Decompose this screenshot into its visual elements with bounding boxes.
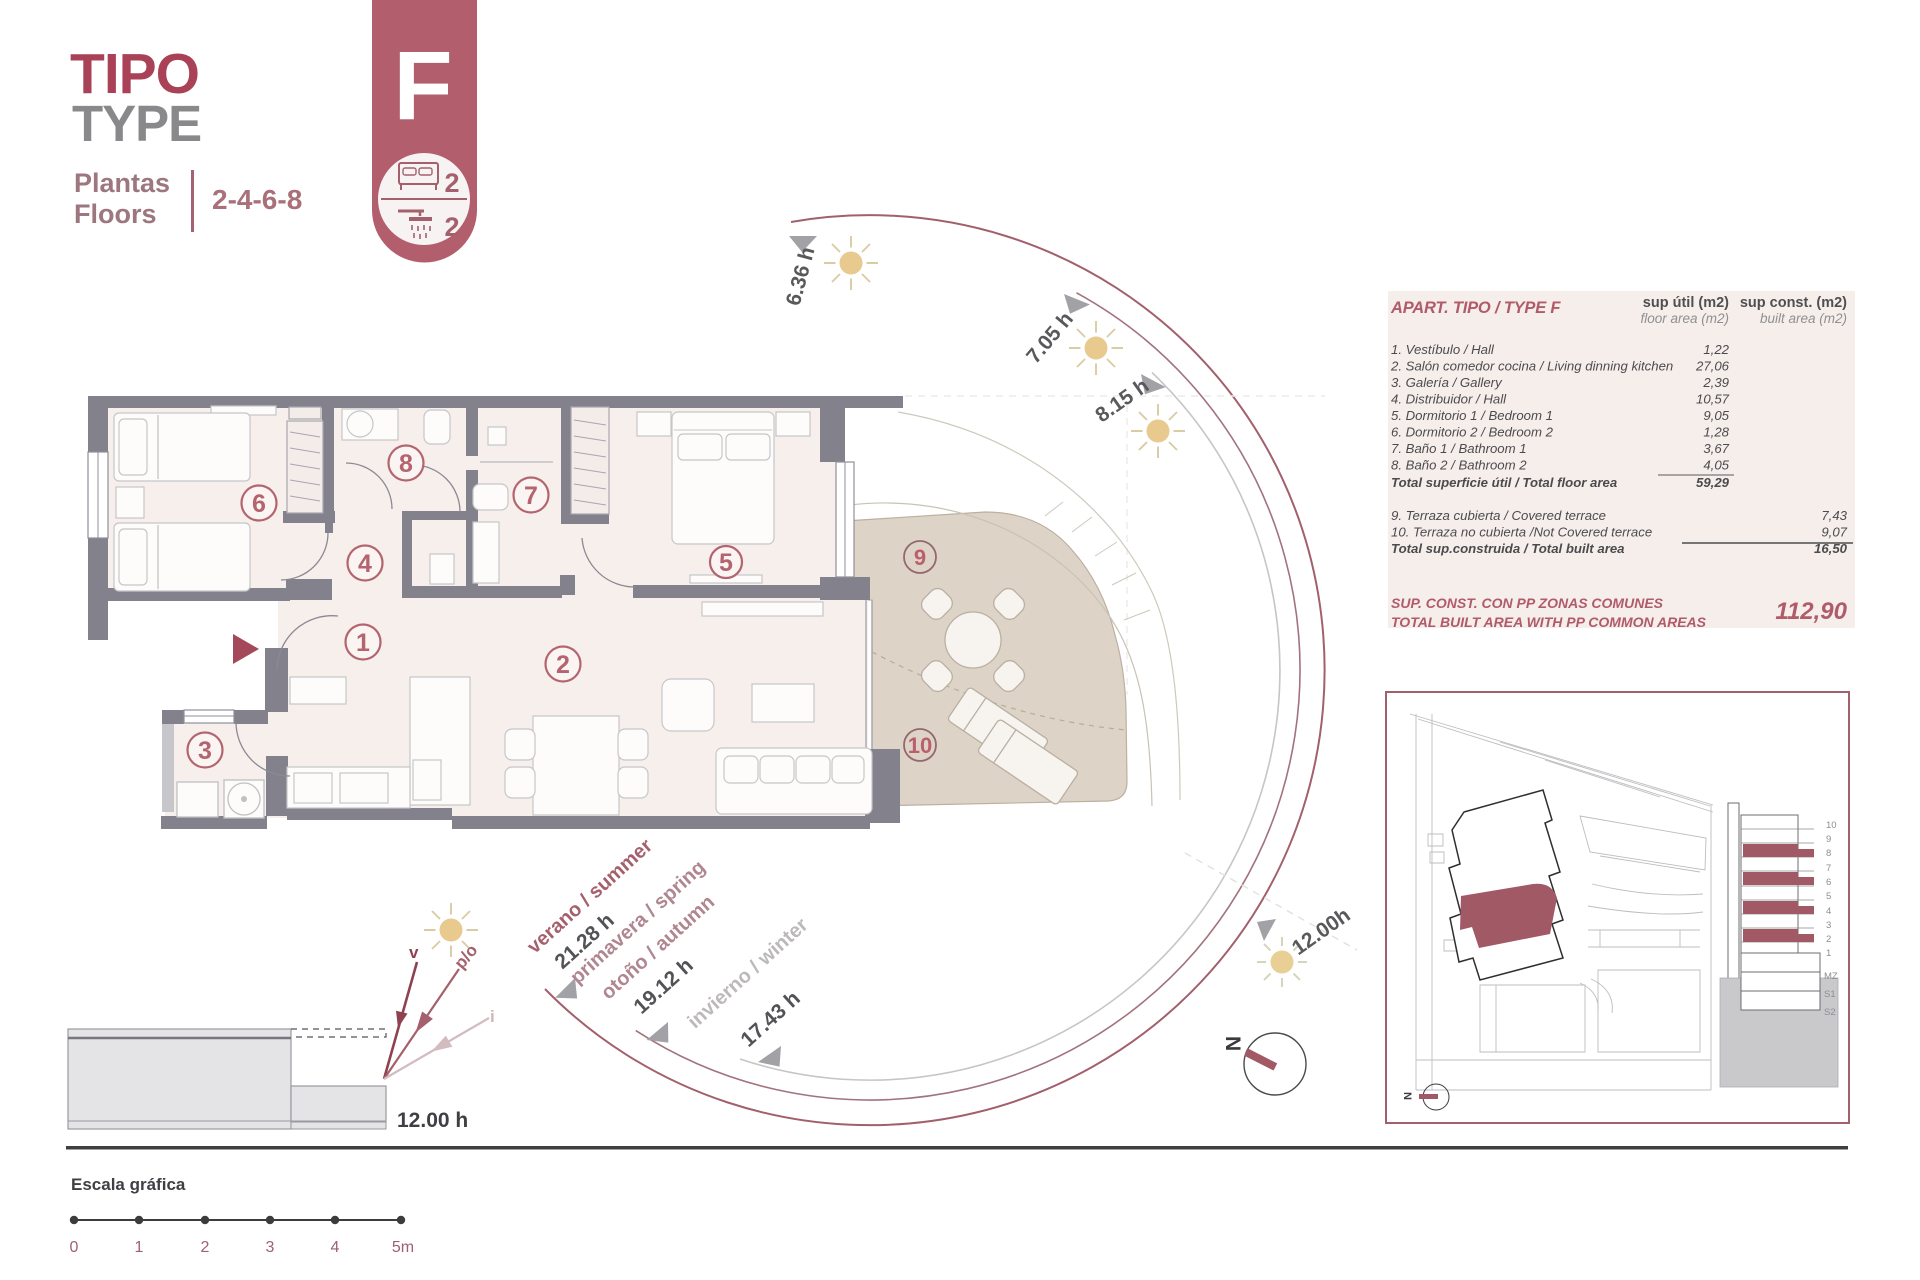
svg-text:2: 2 bbox=[201, 1239, 210, 1256]
svg-text:10,57: 10,57 bbox=[1696, 392, 1730, 407]
svg-text:9: 9 bbox=[914, 545, 926, 570]
svg-text:floor area (m2): floor area (m2) bbox=[1640, 311, 1729, 326]
svg-text:10: 10 bbox=[1826, 820, 1837, 831]
svg-text:1,22: 1,22 bbox=[1703, 342, 1729, 357]
svg-text:Escala gráfica: Escala gráfica bbox=[71, 1175, 186, 1194]
svg-text:2: 2 bbox=[556, 651, 570, 679]
svg-text:TOTAL BUILT AREA WITH PP COMMO: TOTAL BUILT AREA WITH PP COMMON AREAS bbox=[1391, 614, 1707, 630]
svg-text:6: 6 bbox=[1826, 877, 1831, 888]
svg-text:5. Dormitorio 1 / Bedroom 1: 5. Dormitorio 1 / Bedroom 1 bbox=[1391, 408, 1553, 423]
svg-text:5: 5 bbox=[719, 549, 733, 577]
svg-text:1: 1 bbox=[356, 629, 370, 657]
svg-text:1,28: 1,28 bbox=[1703, 425, 1729, 440]
svg-text:4: 4 bbox=[358, 550, 372, 578]
svg-text:112,90: 112,90 bbox=[1775, 598, 1847, 625]
svg-text:4,05: 4,05 bbox=[1703, 458, 1729, 473]
svg-text:4: 4 bbox=[331, 1239, 340, 1256]
svg-text:9,05: 9,05 bbox=[1703, 408, 1729, 423]
svg-text:9. Terraza cubierta / Covered: 9. Terraza cubierta / Covered terrace bbox=[1391, 508, 1606, 523]
svg-text:MZ: MZ bbox=[1824, 971, 1838, 982]
svg-text:9,07: 9,07 bbox=[1821, 525, 1847, 540]
svg-text:built area (m2): built area (m2) bbox=[1760, 311, 1847, 326]
svg-text:8: 8 bbox=[1826, 848, 1831, 859]
svg-text:i: i bbox=[490, 1007, 495, 1026]
svg-text:F: F bbox=[393, 31, 452, 140]
svg-text:9: 9 bbox=[1826, 834, 1831, 845]
svg-text:6. Dormitorio 2 / Bedroom 2: 6. Dormitorio 2 / Bedroom 2 bbox=[1391, 425, 1554, 440]
svg-text:7,43: 7,43 bbox=[1821, 508, 1847, 523]
svg-text:Plantas: Plantas bbox=[74, 168, 170, 198]
svg-text:SUP. CONST. CON PP ZONAS COMUN: SUP. CONST. CON PP ZONAS COMUNES bbox=[1391, 595, 1664, 611]
svg-text:1: 1 bbox=[1826, 948, 1831, 959]
svg-text:7: 7 bbox=[1826, 863, 1831, 874]
svg-text:Total superficie útil / Total: Total superficie útil / Total floor area bbox=[1391, 475, 1617, 490]
svg-text:Floors: Floors bbox=[74, 199, 157, 229]
svg-text:S2: S2 bbox=[1824, 1007, 1836, 1018]
svg-text:3: 3 bbox=[1826, 920, 1831, 931]
svg-text:5m: 5m bbox=[392, 1239, 414, 1256]
svg-text:2: 2 bbox=[444, 168, 459, 198]
svg-text:v: v bbox=[409, 943, 419, 962]
svg-text:4. Distribuidor / Hall: 4. Distribuidor / Hall bbox=[1391, 392, 1507, 407]
svg-text:2. Salón comedor cocina / Livi: 2. Salón comedor cocina / Living dinning… bbox=[1390, 359, 1673, 374]
svg-text:1. Vestíbulo / Hall: 1. Vestíbulo / Hall bbox=[1391, 342, 1495, 357]
svg-text:8. Baño 2 / Bathroom 2: 8. Baño 2 / Bathroom 2 bbox=[1391, 458, 1527, 473]
svg-text:sup útil (m2): sup útil (m2) bbox=[1643, 295, 1729, 311]
svg-text:3,67: 3,67 bbox=[1703, 441, 1729, 456]
svg-text:N: N bbox=[1221, 1036, 1244, 1051]
svg-text:59,29: 59,29 bbox=[1696, 475, 1730, 490]
svg-text:7: 7 bbox=[524, 482, 538, 510]
svg-text:3: 3 bbox=[198, 737, 212, 765]
svg-text:10: 10 bbox=[908, 733, 932, 758]
svg-text:3: 3 bbox=[266, 1239, 275, 1256]
svg-text:1: 1 bbox=[135, 1239, 144, 1256]
svg-text:3. Galería / Gallery: 3. Galería / Gallery bbox=[1391, 375, 1503, 390]
svg-text:sup const. (m2): sup const. (m2) bbox=[1740, 295, 1847, 311]
svg-text:2: 2 bbox=[1826, 934, 1831, 945]
svg-text:2: 2 bbox=[444, 212, 459, 242]
svg-text:TYPE: TYPE bbox=[72, 95, 201, 152]
svg-text:2,39: 2,39 bbox=[1702, 375, 1729, 390]
svg-text:4: 4 bbox=[1826, 906, 1831, 917]
svg-text:8: 8 bbox=[399, 450, 413, 478]
svg-text:0: 0 bbox=[70, 1239, 79, 1256]
svg-text:10. Terraza no cubierta /Not C: 10. Terraza no cubierta /Not Covered ter… bbox=[1391, 525, 1652, 540]
svg-text:2-4-6-8: 2-4-6-8 bbox=[212, 184, 302, 215]
svg-text:APART. TIPO / TYPE F: APART. TIPO / TYPE F bbox=[1390, 299, 1561, 317]
svg-text:7. Baño 1 / Bathroom 1: 7. Baño 1 / Bathroom 1 bbox=[1391, 441, 1527, 456]
svg-text:6: 6 bbox=[252, 490, 266, 518]
svg-text:5: 5 bbox=[1826, 891, 1831, 902]
svg-text:S1: S1 bbox=[1824, 989, 1836, 1000]
svg-text:12.00 h: 12.00 h bbox=[397, 1109, 468, 1132]
svg-text:N: N bbox=[1401, 1092, 1413, 1100]
svg-text:Total sup.construida / Total b: Total sup.construida / Total built area bbox=[1391, 541, 1625, 556]
svg-text:27,06: 27,06 bbox=[1695, 359, 1730, 374]
